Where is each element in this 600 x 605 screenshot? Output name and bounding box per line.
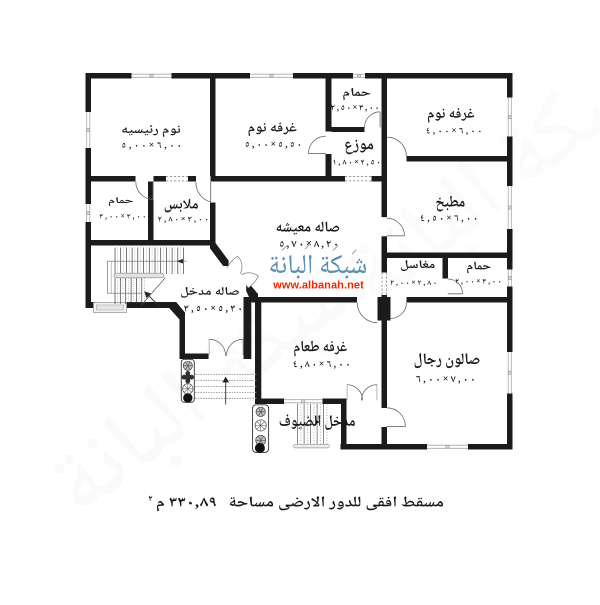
svg-text:www.albanah.net: www.albanah.net <box>272 280 364 292</box>
